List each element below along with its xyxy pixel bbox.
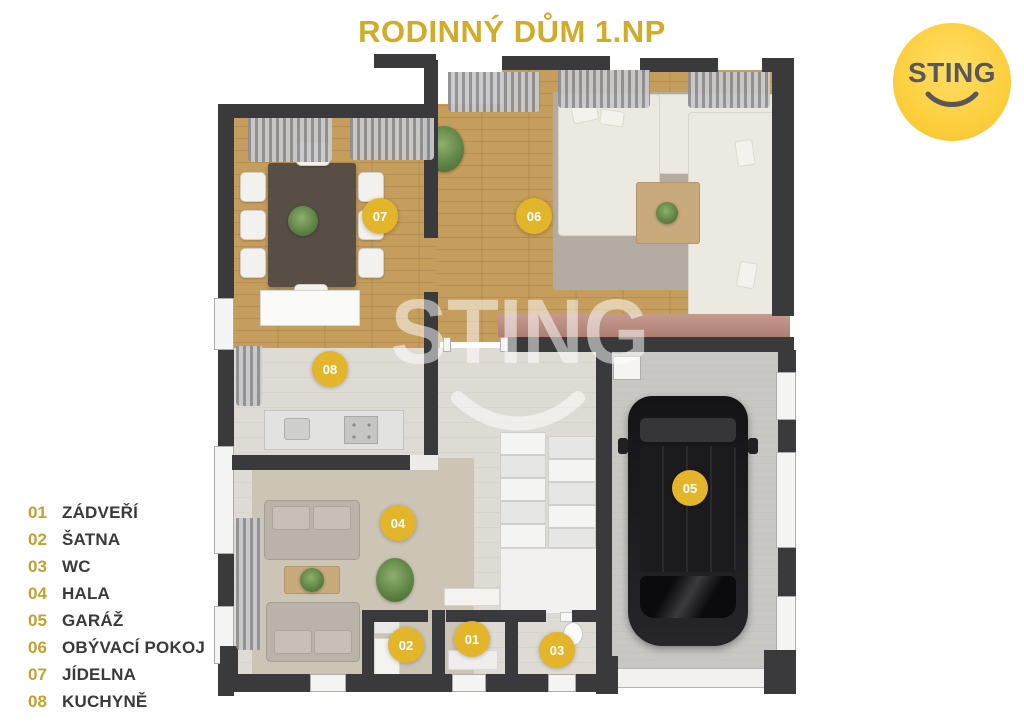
room-marker-01: 01 xyxy=(454,621,490,657)
room-marker-06: 06 xyxy=(516,198,552,234)
room-marker-04: 04 xyxy=(380,505,416,541)
room-marker-08: 08 xyxy=(312,351,348,387)
room-marker-05: 05 xyxy=(672,470,708,506)
floorplan-page: RODINNÝ DŮM 1.NP STING 01ZÁDVEŘÍ02ŠATNA0… xyxy=(0,0,1024,724)
markers-layer: 0706080405020103 xyxy=(0,0,1024,724)
room-marker-02: 02 xyxy=(388,627,424,663)
floorplan: 0706080405020103 STING xyxy=(0,0,1024,724)
room-marker-07: 07 xyxy=(362,198,398,234)
room-marker-03: 03 xyxy=(539,632,575,668)
